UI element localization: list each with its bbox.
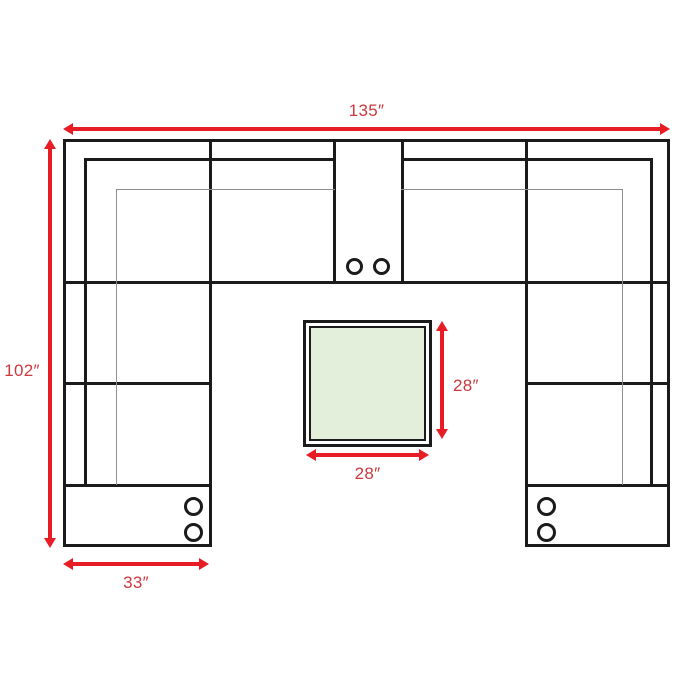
left-arm-backrest-line [84, 158, 87, 487]
seat-cushion-line-left-v [116, 189, 117, 485]
cupholder-icon [184, 523, 203, 542]
arrow-bar [70, 127, 663, 131]
back-cushion-line-right [401, 158, 653, 161]
cupholder-icon [184, 497, 203, 516]
right-console-bottom-edge [525, 544, 670, 547]
right-console-top-edge [527, 484, 669, 487]
arrowhead-left-icon [63, 558, 73, 570]
arrow-bar [313, 453, 422, 457]
seat-cushion-line-right-v [622, 189, 623, 485]
arrowhead-right-icon [199, 558, 209, 570]
arrow-bar [48, 146, 52, 541]
arrow-bar [440, 328, 444, 432]
cupholder-icon [346, 258, 363, 275]
dim-label-overall-depth: 102″ [2, 362, 42, 379]
dim-arrow-overall-depth [43, 139, 57, 548]
arrowhead-down-icon [44, 538, 56, 548]
arrowhead-up-icon [44, 139, 56, 149]
cupholder-icon [537, 497, 556, 516]
dim-arrow-table-width [306, 448, 429, 462]
arrowhead-right-icon [660, 123, 670, 135]
back-cushion-line-left [85, 158, 335, 161]
seat-cushion-line-left-h [116, 189, 335, 190]
sofa-outline-top [63, 139, 670, 142]
right-seat-divider [527, 382, 669, 385]
right-arm-backrest-line [650, 158, 653, 487]
dim-label-table-width: 28″ [306, 465, 429, 482]
dim-label-table-depth: 28″ [453, 377, 479, 394]
arrowhead-right-icon [419, 449, 429, 461]
sofa-back-band-bottom [63, 281, 670, 284]
dim-arrow-arm-width [63, 557, 209, 571]
arrow-bar [70, 562, 202, 566]
dim-label-overall-width: 135″ [63, 102, 670, 119]
arrowhead-left-icon [306, 449, 316, 461]
floor-plan-diagram: 135″ 102″ 33″ 28″ 28″ [0, 0, 700, 700]
arrowhead-down-icon [436, 429, 448, 439]
left-console-top-edge [63, 484, 211, 487]
cupholder-icon [373, 258, 390, 275]
arrowhead-left-icon [63, 123, 73, 135]
center-table [303, 320, 432, 447]
dim-arrow-overall-width [63, 122, 670, 136]
dim-label-arm-width: 33″ [63, 574, 209, 591]
center-table-top [309, 326, 426, 441]
left-console-bottom-edge [63, 544, 212, 547]
cupholder-icon [537, 523, 556, 542]
dim-arrow-table-depth [435, 321, 449, 439]
left-seat-divider [63, 382, 211, 385]
seat-cushion-line-right-h [401, 189, 623, 190]
arrowhead-up-icon [436, 321, 448, 331]
